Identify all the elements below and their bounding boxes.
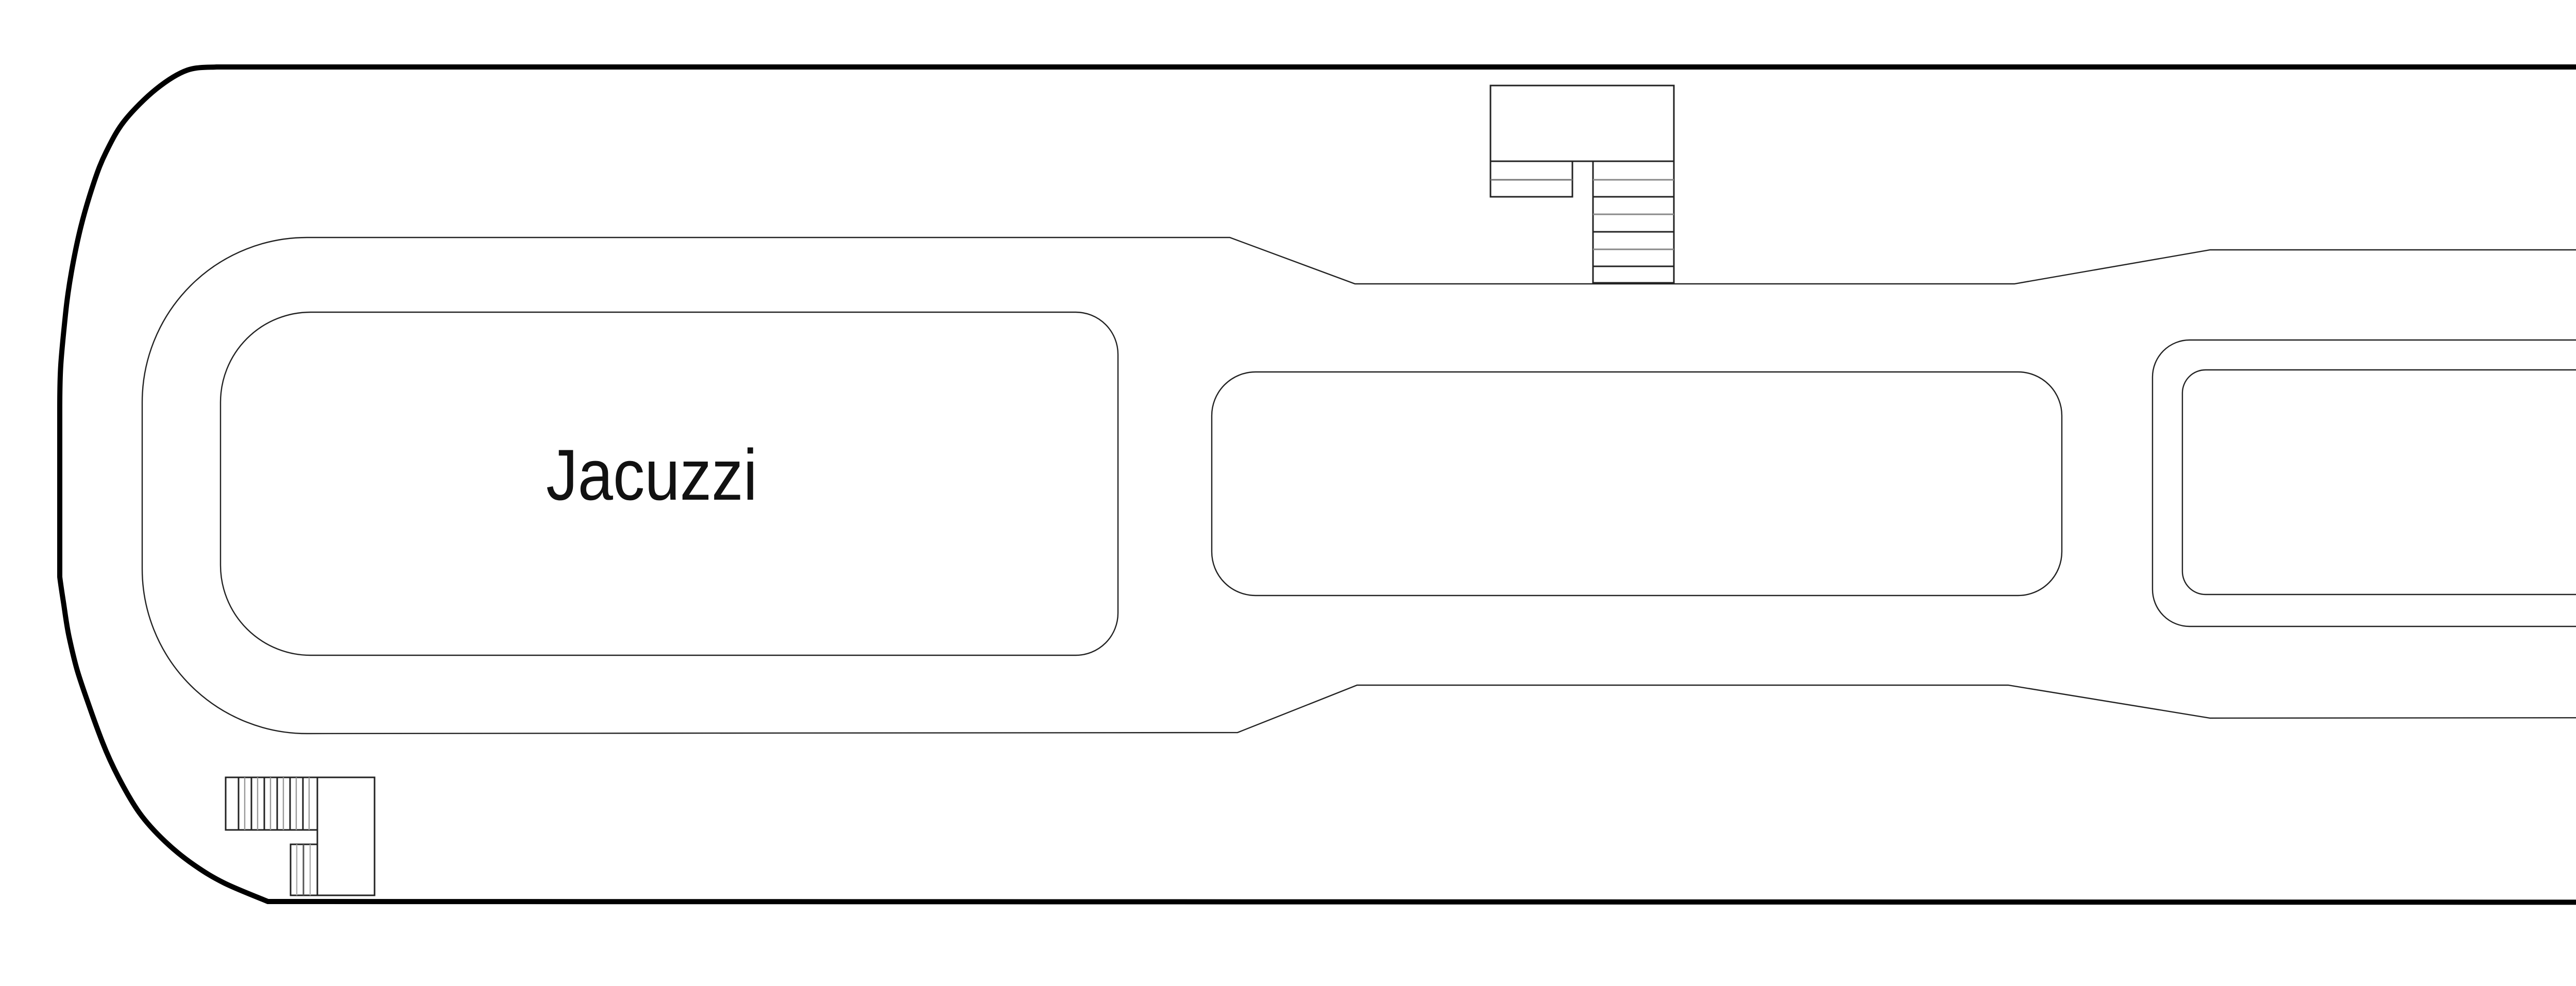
svg-text:Jacuzzi: Jacuzzi	[546, 434, 757, 515]
